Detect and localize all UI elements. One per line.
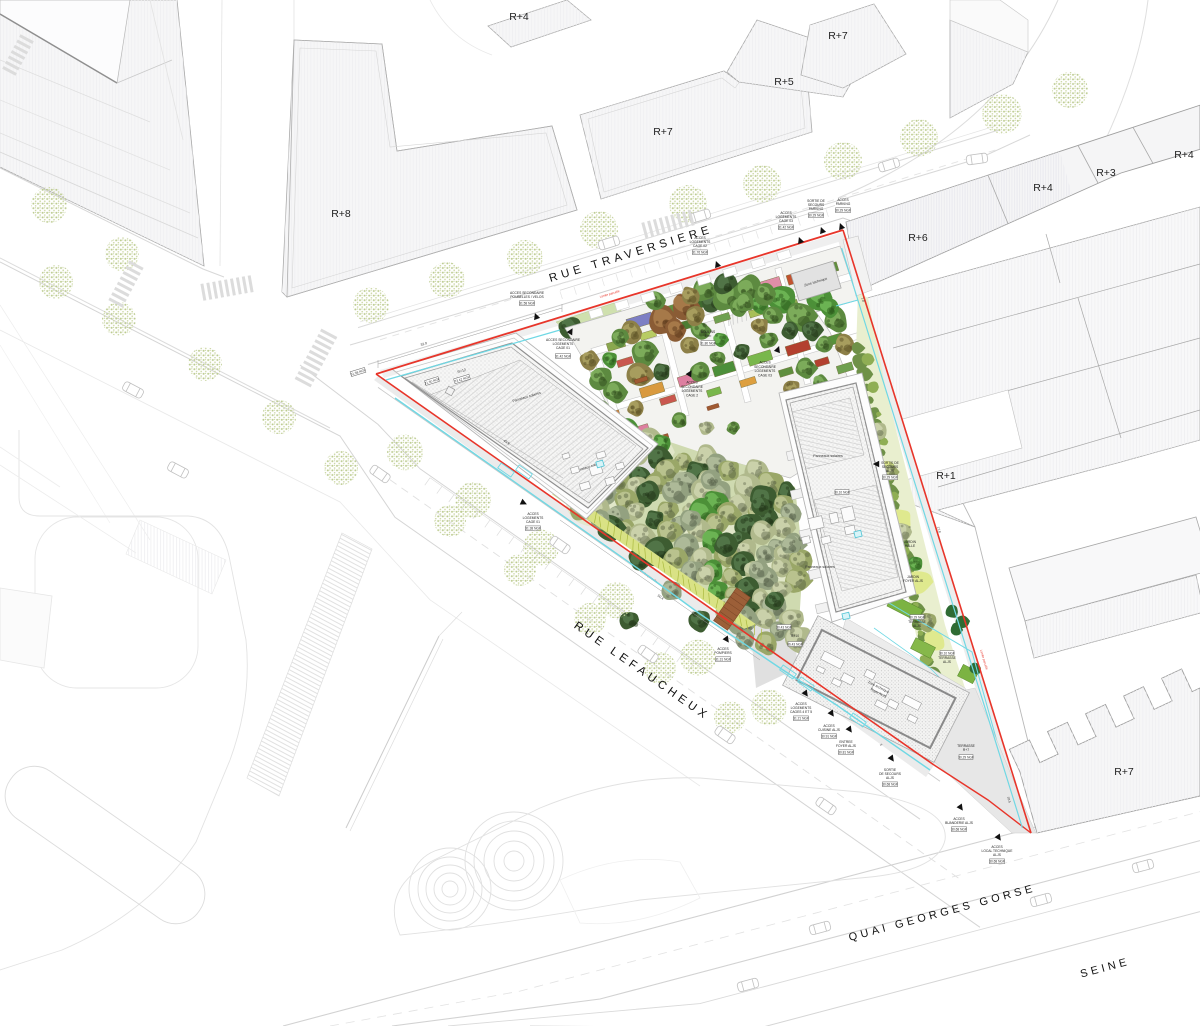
svg-text:R+3: R+3 [1096, 167, 1116, 179]
svg-text:31.31 NGF: 31.31 NGF [715, 658, 731, 662]
svg-text:R+6: R+6 [908, 232, 928, 244]
svg-text:ALJS: ALJS [886, 469, 895, 473]
svg-text:HALLE: HALLE [905, 544, 916, 548]
svg-text:66.43 NGF: 66.43 NGF [787, 642, 803, 646]
svg-text:30.10 NGF: 30.10 NGF [939, 651, 955, 655]
svg-text:CAGE 2: CAGE 2 [686, 393, 698, 397]
svg-text:31.42 NGF: 31.42 NGF [555, 354, 571, 358]
svg-text:PARKING: PARKING [836, 202, 851, 206]
svg-text:CAGE 03: CAGE 03 [779, 219, 793, 223]
svg-text:CAGE 03: CAGE 03 [758, 373, 772, 377]
svg-text:R+8: R+8 [331, 208, 351, 220]
svg-text:ALJS: ALJS [913, 624, 922, 628]
svg-text:Panneaux solaires: Panneaux solaires [813, 454, 843, 458]
svg-text:R+10: R+10 [791, 634, 799, 638]
svg-text:30.68 NGF: 30.68 NGF [951, 828, 967, 832]
svg-text:CAGE 01: CAGE 01 [526, 520, 540, 524]
svg-text:31.42 NGF: 31.42 NGF [778, 226, 794, 230]
svg-text:30.29 NGF: 30.29 NGF [882, 476, 898, 480]
svg-text:31.21 NGF: 31.21 NGF [793, 717, 809, 721]
svg-text:POUBELLES / VELOS: POUBELLES / VELOS [510, 295, 544, 299]
svg-text:FOYER ALJS: FOYER ALJS [836, 744, 857, 748]
svg-text:30.81 NGF: 30.81 NGF [838, 751, 854, 755]
svg-text:R+1: R+1 [936, 470, 956, 482]
svg-text:31.58 NGF: 31.58 NGF [519, 302, 535, 306]
svg-text:R+4: R+4 [1033, 182, 1053, 194]
svg-text:30.10 NGF: 30.10 NGF [834, 490, 850, 494]
svg-text:30.43 NGF: 30.43 NGF [776, 625, 792, 629]
svg-text:30.29 NGF: 30.29 NGF [808, 214, 824, 218]
svg-text:CUISINE ALJS: CUISINE ALJS [818, 728, 841, 732]
svg-text:30.29 NGF: 30.29 NGF [835, 209, 851, 213]
svg-text:R+7: R+7 [963, 748, 969, 752]
svg-text:R+4: R+4 [509, 11, 529, 23]
svg-text:POMPIERS: POMPIERS [714, 651, 732, 655]
svg-text:FOYER ALJS: FOYER ALJS [903, 579, 924, 583]
svg-text:R+7: R+7 [828, 30, 848, 42]
svg-text:R+5: R+5 [774, 76, 794, 88]
svg-text:BUANDERIE ALJS: BUANDERIE ALJS [945, 821, 974, 825]
svg-text:CAGES 4 ET 5: CAGES 4 ET 5 [790, 710, 812, 714]
svg-text:Panneaux solaires: Panneaux solaires [805, 565, 835, 569]
svg-text:CAGE 01: CAGE 01 [556, 346, 570, 350]
svg-text:PARKING: PARKING [809, 207, 824, 211]
svg-text:30.68 NGF: 30.68 NGF [882, 783, 898, 787]
svg-text:ALJS: ALJS [886, 776, 895, 780]
svg-text:30.91 NGF: 30.91 NGF [821, 735, 837, 739]
svg-text:31.80 NGF: 31.80 NGF [700, 341, 716, 345]
svg-text:8 m²: 8 m² [705, 334, 712, 338]
svg-text:30.29 NGF: 30.29 NGF [909, 615, 925, 619]
svg-text:R+7: R+7 [1114, 766, 1134, 778]
svg-text:CAGE 02: CAGE 02 [693, 244, 707, 248]
svg-text:R+4: R+4 [1174, 149, 1194, 161]
svg-text:ALJS: ALJS [943, 660, 952, 664]
svg-text:31.76 NGF: 31.76 NGF [692, 251, 708, 255]
svg-text:30.29 NGF: 30.29 NGF [958, 755, 974, 759]
svg-text:30.68 NGF: 30.68 NGF [989, 860, 1005, 864]
svg-text:ALJS: ALJS [993, 853, 1002, 857]
svg-text:R+7: R+7 [653, 126, 673, 138]
